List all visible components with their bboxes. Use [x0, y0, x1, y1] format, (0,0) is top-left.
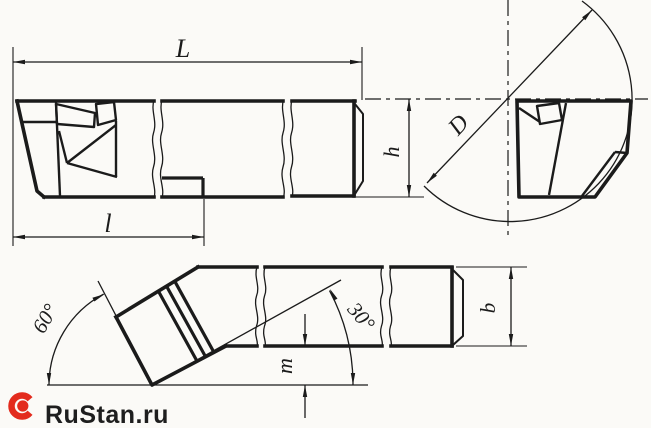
break-line — [290, 100, 292, 197]
drawing-canvas: L l h D — [0, 0, 651, 428]
diameter-line — [427, 10, 592, 183]
arrowhead — [13, 60, 25, 64]
dimension-l: l — [13, 199, 204, 246]
end-chamfer-inner — [582, 152, 627, 196]
arrowhead — [303, 385, 307, 397]
watermark-logo — [11, 396, 30, 417]
dim-label-b: b — [476, 303, 500, 314]
arrowhead — [13, 235, 25, 239]
end-insert-line — [549, 103, 566, 195]
dimension-angle-30: 30° — [152, 280, 380, 385]
head-top-edge — [116, 267, 198, 317]
arrowhead — [92, 294, 104, 302]
angle-60-arc — [49, 294, 104, 385]
end-insert-face — [537, 103, 562, 124]
break-line — [160, 100, 162, 198]
head-facet-line-3 — [67, 163, 117, 177]
dimension-h: h — [356, 99, 424, 197]
arrowhead — [509, 267, 513, 279]
dim-label-D: D — [443, 110, 475, 141]
head-facet-line-2 — [67, 125, 116, 163]
technical-drawing-page: L l h D — [0, 0, 651, 428]
chipbreaker-face — [96, 102, 116, 125]
break-line — [152, 100, 154, 198]
angle-30-arc — [330, 291, 354, 385]
break-line — [282, 100, 284, 197]
insert-face — [56, 104, 95, 127]
arrowhead — [47, 373, 51, 385]
arrowhead — [407, 185, 411, 197]
dimension-angle-60: 60° — [27, 281, 368, 385]
plan-end-chamfer — [453, 270, 463, 345]
head-underside-step — [162, 178, 203, 196]
dimension-b: b — [456, 267, 527, 346]
arrowhead — [509, 334, 513, 346]
side-left-edge — [17, 101, 44, 197]
side-view — [17, 100, 363, 198]
angle-60-leg — [98, 281, 152, 385]
end-view: D — [365, 0, 648, 240]
head-facet-line-1 — [59, 131, 67, 163]
end-chamfer-profile — [355, 104, 363, 194]
dimension-L: L — [13, 34, 362, 246]
logo-dot — [17, 400, 28, 411]
break-line — [381, 267, 383, 347]
break-line — [256, 267, 258, 347]
watermark-text: RuStan.ru — [45, 401, 169, 428]
arrowhead — [350, 60, 362, 64]
dim-label-L: L — [175, 34, 190, 63]
dim-label-m: m — [272, 358, 297, 374]
dimension-m: m — [272, 314, 307, 418]
arrowhead — [192, 235, 204, 239]
tool-end-outline — [517, 101, 631, 197]
arrowhead — [407, 99, 411, 111]
dim-label-30: 30° — [342, 297, 380, 336]
dim-label-h: h — [379, 147, 404, 158]
head-insert-lines — [159, 282, 215, 362]
dim-label-60: 60° — [27, 299, 63, 337]
arrowhead — [351, 373, 355, 385]
dim-label-l: l — [104, 209, 111, 238]
break-line — [390, 267, 392, 347]
break-line — [264, 267, 266, 347]
